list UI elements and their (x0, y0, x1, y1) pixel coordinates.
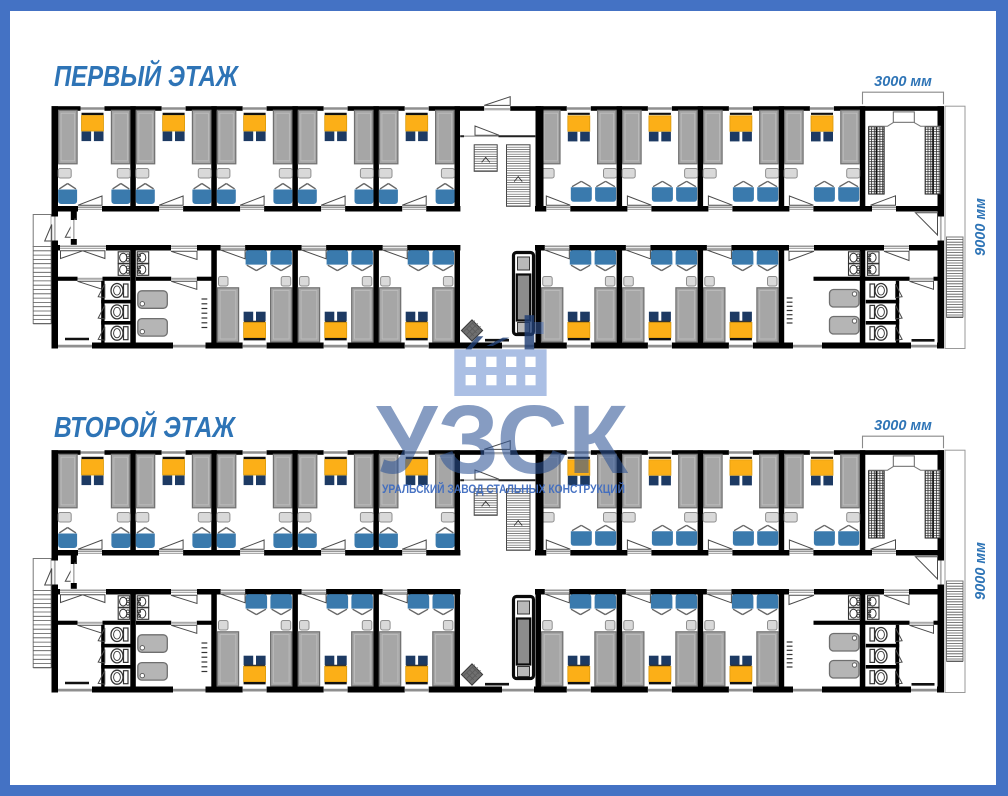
svg-text:УРАЛЬСКИЙ ЗАВОД СТАЛЬНЫХ КОНСТ: УРАЛЬСКИЙ ЗАВОД СТАЛЬНЫХ КОНСТРУКЦИЙ (382, 481, 625, 496)
svg-text:УЗСК: УЗСК (376, 385, 629, 494)
svg-text:ПЕРВЫЙ ЭТАЖ: ПЕРВЫЙ ЭТАЖ (54, 60, 239, 93)
svg-text:ВТОРОЙ ЭТАЖ: ВТОРОЙ ЭТАЖ (54, 411, 236, 444)
